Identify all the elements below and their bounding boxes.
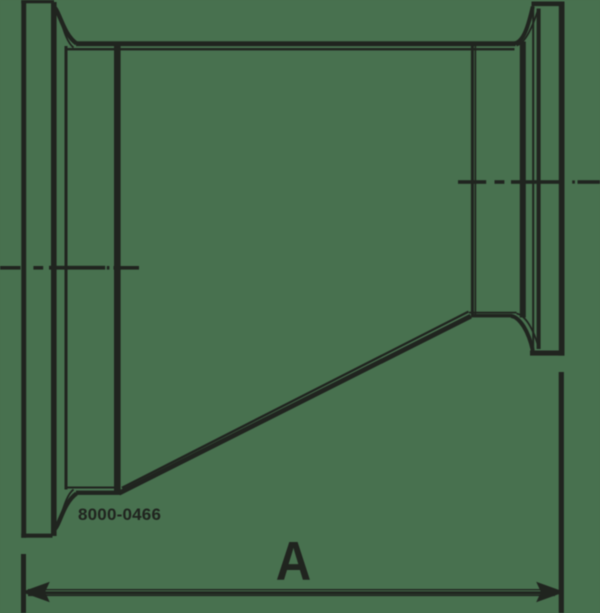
svg-text:8000-0466: 8000-0466	[78, 505, 161, 524]
svg-text:A: A	[276, 530, 311, 591]
